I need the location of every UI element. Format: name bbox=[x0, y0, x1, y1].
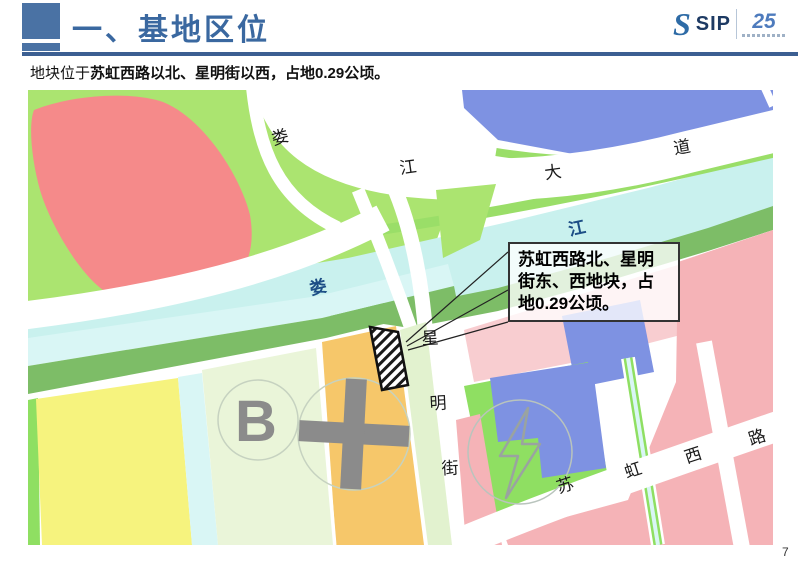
sip-logo-text: SIP bbox=[696, 13, 731, 36]
anniversary-caption bbox=[742, 34, 786, 37]
anniversary-mark: 25 bbox=[742, 11, 786, 37]
yellow-parcel bbox=[36, 378, 192, 545]
svg-text:江: 江 bbox=[398, 157, 417, 178]
subtitle-emphasis: 苏虹西路以北、星明街以西，占地0.29公顷。 bbox=[90, 65, 389, 82]
slide: 一、基地区位 S SIP 25 地块位于苏虹西路以北、星明街以西，占地0.29公… bbox=[0, 0, 800, 565]
site-map: B 娄 江 大 道 娄 bbox=[28, 90, 773, 545]
title-accent-bar bbox=[22, 43, 60, 51]
site-callout: 苏虹西路北、星明街东、西地块，占地0.29公顷。 bbox=[508, 242, 680, 322]
slide-subtitle: 地块位于苏虹西路以北、星明街以西，占地0.29公顷。 bbox=[30, 62, 389, 83]
sip-swoosh-icon: S bbox=[673, 8, 691, 40]
svg-text:大: 大 bbox=[543, 162, 562, 183]
svg-text:道: 道 bbox=[672, 137, 692, 159]
subtitle-prefix: 地块位于 bbox=[30, 65, 90, 82]
sip-logo: S SIP 25 bbox=[673, 8, 786, 40]
title-accent-block bbox=[22, 3, 60, 39]
page-title: 一、基地区位 bbox=[72, 5, 270, 49]
logo-divider bbox=[736, 9, 737, 39]
svg-text:明: 明 bbox=[429, 394, 447, 414]
header-rule bbox=[22, 52, 798, 56]
svg-text:街: 街 bbox=[441, 459, 459, 479]
svg-text:星: 星 bbox=[421, 329, 439, 349]
b-marker: B bbox=[235, 389, 277, 454]
page-number: 7 bbox=[782, 545, 789, 559]
anniversary-number: 25 bbox=[752, 11, 775, 32]
